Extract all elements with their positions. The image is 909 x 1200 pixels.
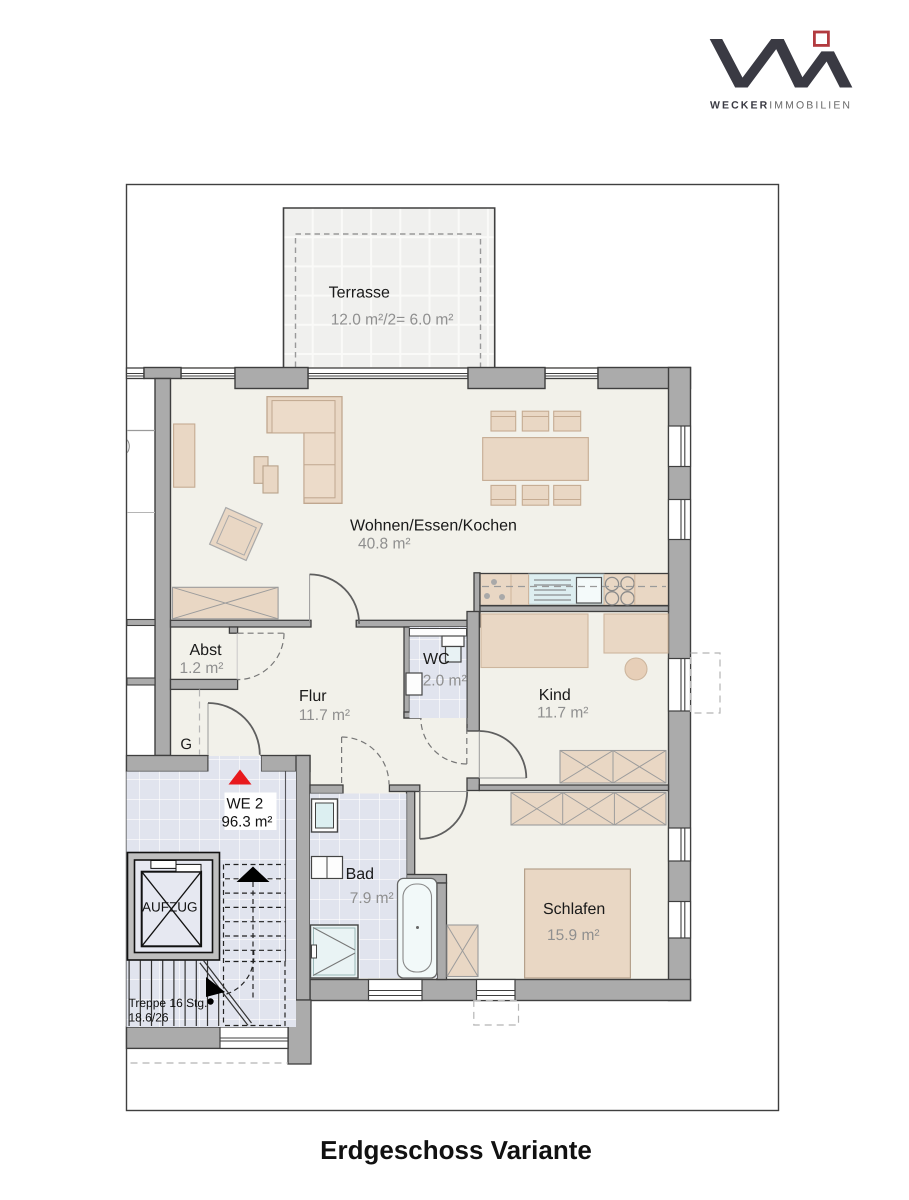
svg-text:WC: WC — [423, 651, 450, 668]
svg-text:Kind: Kind — [539, 687, 571, 704]
svg-text:96.3 m²: 96.3 m² — [222, 814, 273, 831]
svg-text:Abst: Abst — [190, 642, 223, 659]
svg-text:11.7 m²: 11.7 m² — [299, 707, 350, 724]
svg-text:AUFZUG: AUFZUG — [142, 900, 198, 915]
svg-text:12.0 m²/2= 6.0 m²: 12.0 m²/2= 6.0 m² — [331, 312, 454, 329]
svg-text:Treppe 16 Stg.: Treppe 16 Stg. — [129, 996, 208, 1010]
svg-text:1.2 m²: 1.2 m² — [180, 660, 224, 677]
svg-text:Erdgeschoss Variante: Erdgeschoss Variante — [320, 1135, 592, 1165]
svg-text:7.9 m²: 7.9 m² — [350, 890, 394, 907]
svg-text:Schlafen: Schlafen — [543, 901, 605, 918]
svg-text:Wohnen/Essen/Kochen: Wohnen/Essen/Kochen — [350, 518, 517, 535]
svg-text:Terrasse: Terrasse — [329, 285, 390, 302]
svg-text:40.8 m²: 40.8 m² — [358, 536, 411, 553]
svg-text:15.9 m²: 15.9 m² — [547, 927, 600, 944]
svg-text:G: G — [180, 736, 192, 753]
svg-text:18.6/26: 18.6/26 — [129, 1011, 169, 1025]
svg-text:Bad: Bad — [346, 866, 374, 883]
svg-text:WECKERIMMOBILIEN: WECKERIMMOBILIEN — [710, 100, 852, 112]
svg-text:2.0 m²: 2.0 m² — [423, 673, 467, 690]
svg-text:Flur: Flur — [299, 688, 327, 705]
svg-text:11.7 m²: 11.7 m² — [537, 705, 588, 722]
svg-text:WE 2: WE 2 — [227, 796, 264, 813]
